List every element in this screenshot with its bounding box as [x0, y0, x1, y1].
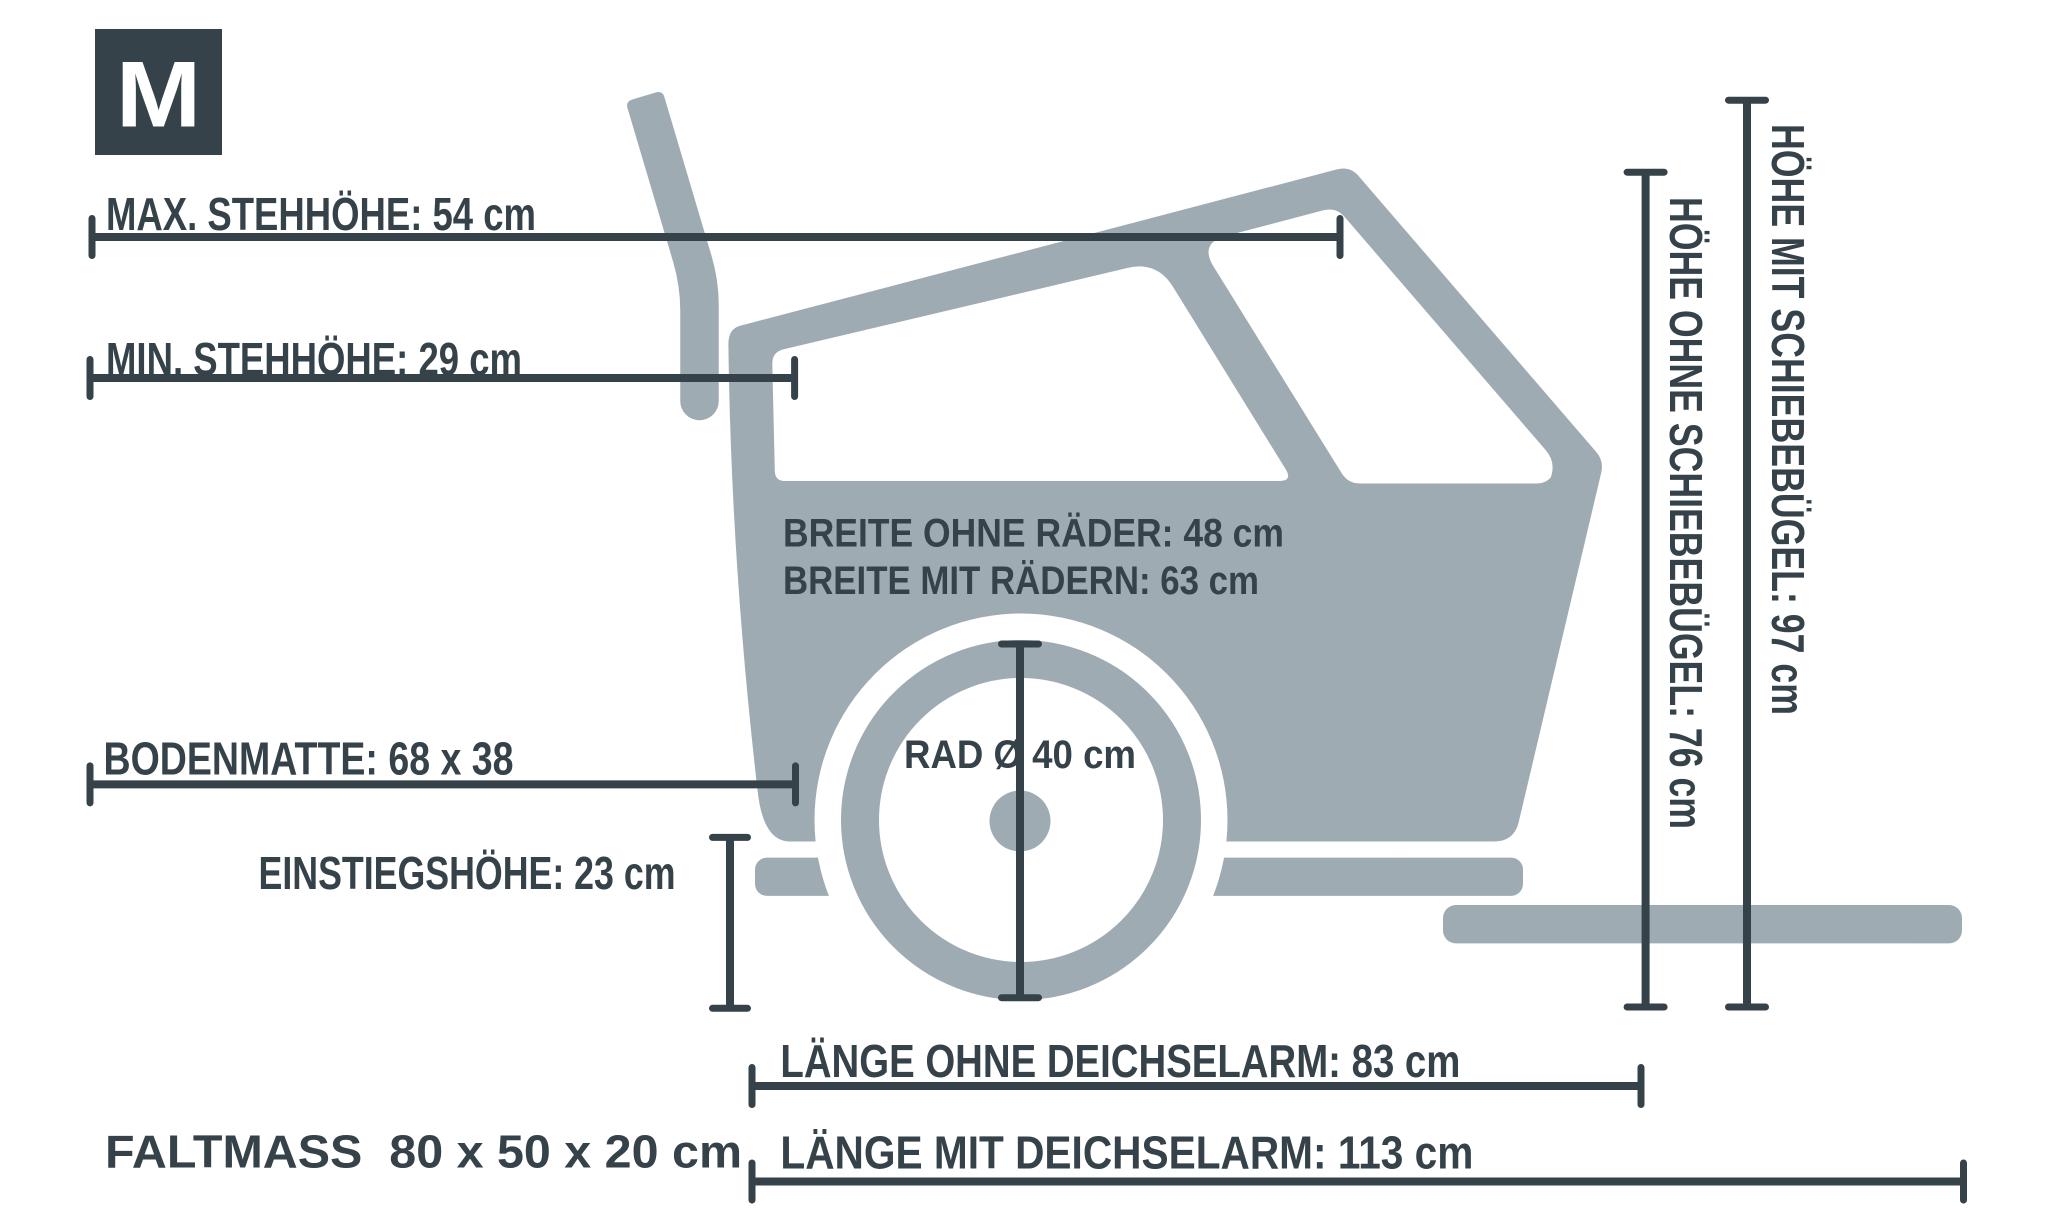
svg-text:LÄNGE MIT DEICHSELARM: 113 cm: LÄNGE MIT DEICHSELARM: 113 cm [780, 1127, 1473, 1179]
svg-text:MAX. STEHHÖHE: 54 cm: MAX. STEHHÖHE: 54 cm [106, 188, 536, 240]
svg-text:MIN. STEHHÖHE: 29 cm: MIN. STEHHÖHE: 29 cm [106, 333, 522, 385]
svg-text:BREITE OHNE RÄDER: 48 cm: BREITE OHNE RÄDER: 48 cm [783, 512, 1284, 556]
svg-text:HÖHE MIT SCHIEBEBÜGEL: 97 cm: HÖHE MIT SCHIEBEBÜGEL: 97 cm [1762, 124, 1814, 715]
svg-text:LÄNGE OHNE DEICHSELARM: 83 cm: LÄNGE OHNE DEICHSELARM: 83 cm [780, 1035, 1460, 1087]
svg-text:RAD Ø 40 cm: RAD Ø 40 cm [904, 733, 1136, 777]
svg-text:HÖHE OHNE SCHIEBEBÜGEL: 76 cm: HÖHE OHNE SCHIEBEBÜGEL: 76 cm [1660, 197, 1712, 829]
svg-text:EINSTIEGSHÖHE: 23 cm: EINSTIEGSHÖHE: 23 cm [259, 847, 676, 899]
svg-text:BODENMATTE: 68 x 38: BODENMATTE: 68 x 38 [104, 732, 514, 784]
svg-text:FALTMASS 80 x 50 x 20 cm: FALTMASS 80 x 50 x 20 cm [105, 1125, 742, 1177]
svg-text:BREITE MIT RÄDERN: 63 cm: BREITE MIT RÄDERN: 63 cm [783, 559, 1259, 603]
svg-text:M: M [116, 41, 201, 146]
